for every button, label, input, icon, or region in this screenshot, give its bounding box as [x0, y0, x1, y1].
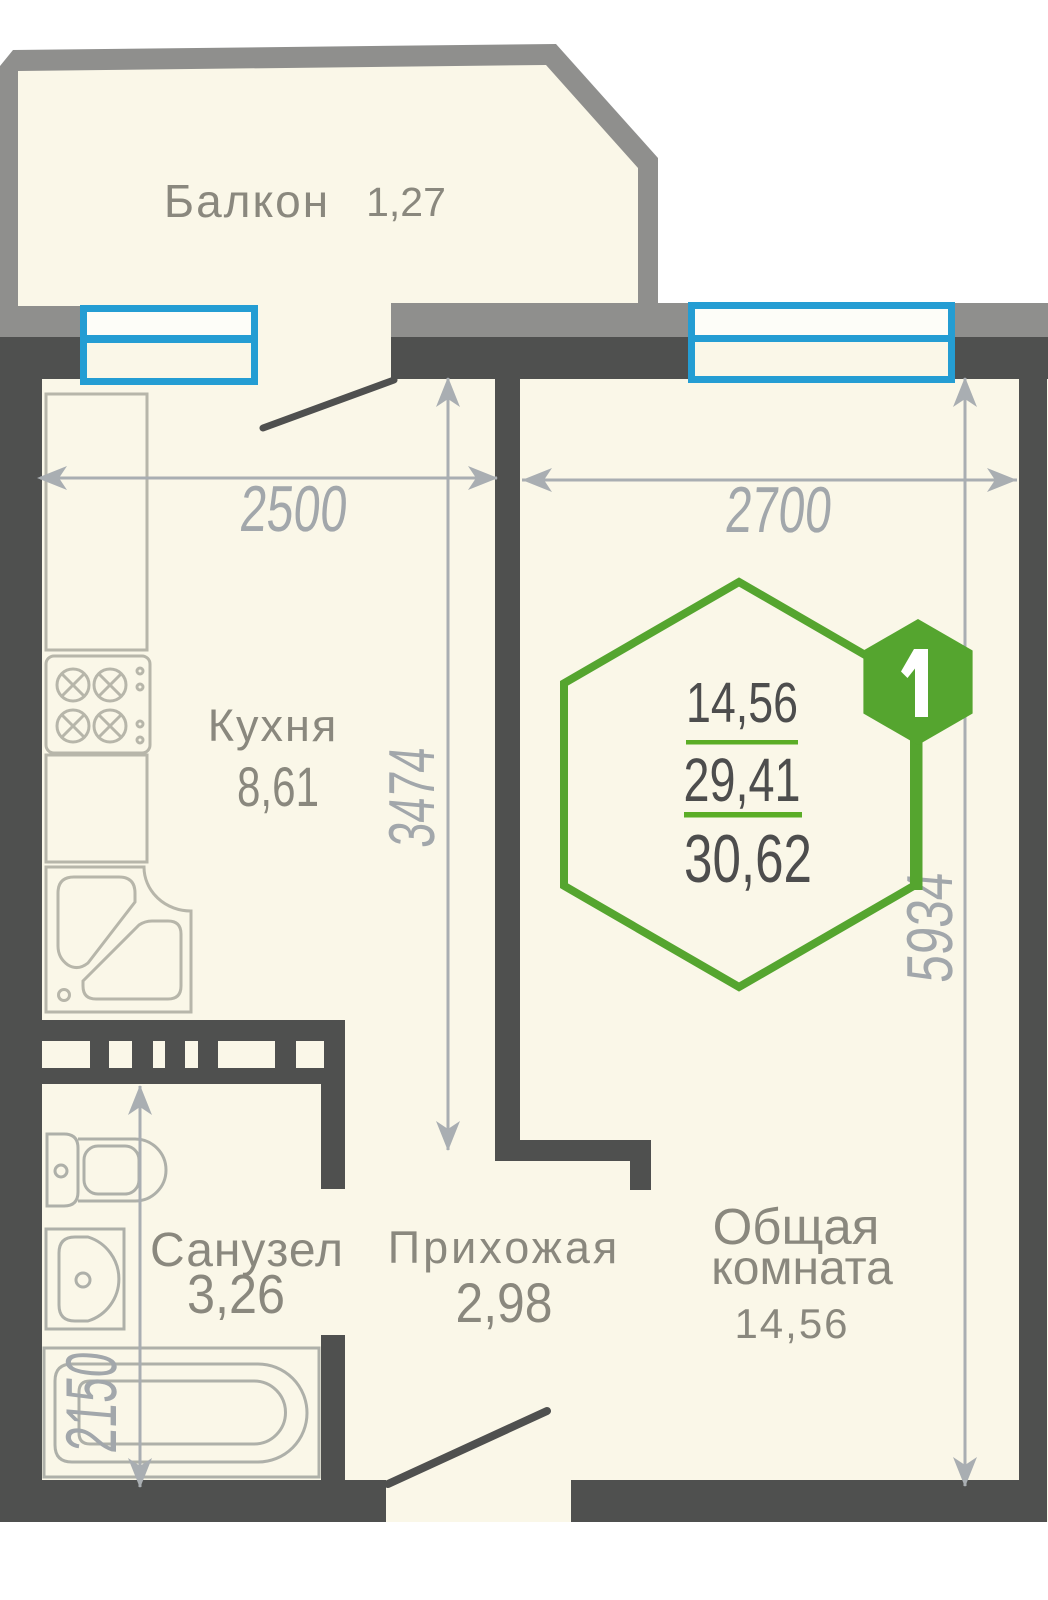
svg-text:2150: 2150: [52, 1348, 132, 1455]
svg-text:Прихожая: Прихожая: [388, 1222, 621, 1273]
svg-text:5934: 5934: [893, 869, 966, 985]
svg-text:2,98: 2,98: [456, 1271, 553, 1334]
svg-text:комната: комната: [711, 1242, 893, 1295]
svg-text:3474: 3474: [375, 744, 448, 850]
svg-text:30,62: 30,62: [684, 821, 812, 897]
svg-text:14,56: 14,56: [686, 671, 798, 735]
svg-text:Балкон: Балкон: [164, 175, 330, 227]
svg-text:Кухня: Кухня: [208, 700, 338, 751]
svg-text:3,26: 3,26: [187, 1263, 285, 1325]
svg-text:8,61: 8,61: [237, 755, 319, 818]
svg-text:1,27: 1,27: [366, 179, 446, 225]
svg-text:2500: 2500: [237, 472, 350, 545]
svg-text:2700: 2700: [723, 473, 835, 546]
svg-text:29,41: 29,41: [684, 746, 801, 814]
svg-text:14,56: 14,56: [734, 1300, 849, 1347]
